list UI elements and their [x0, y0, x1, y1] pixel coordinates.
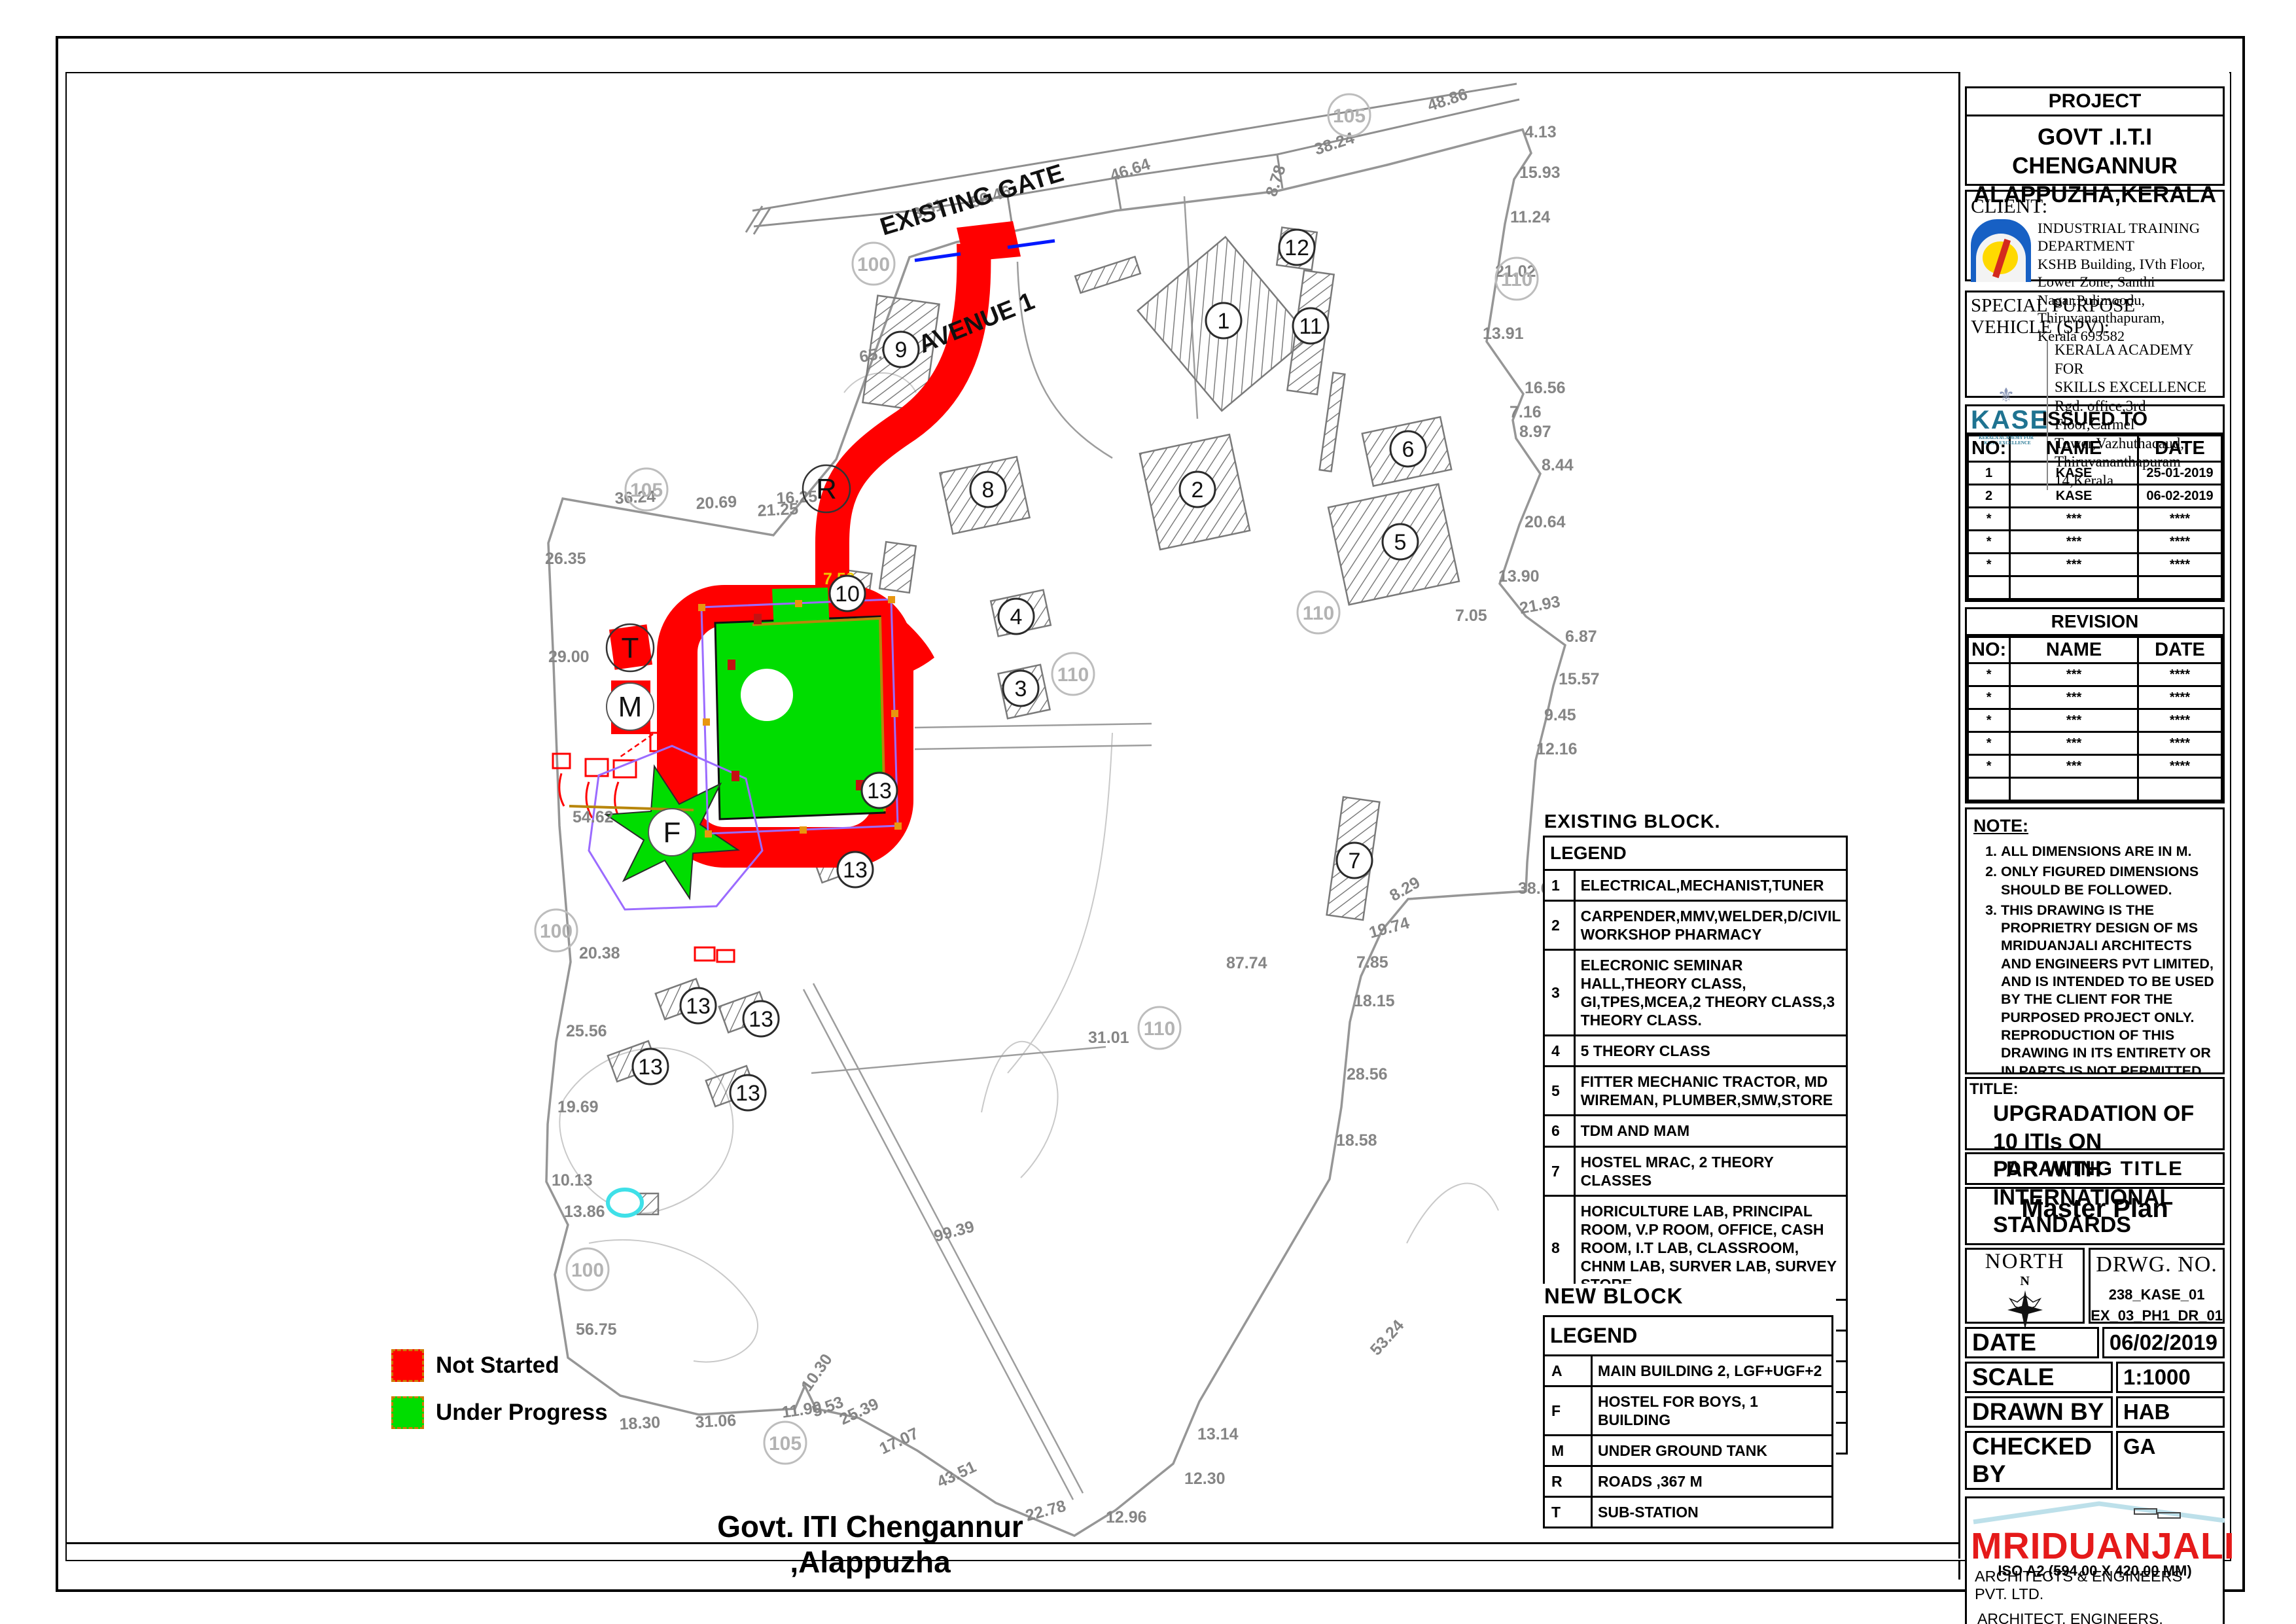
meta-date: DATE 06/02/2019	[1965, 1327, 2225, 1358]
title-block: PROJECT GOVT .I.T.I CHENGANNUR ALAPPUZHA…	[1958, 72, 2229, 1559]
revision-row: ********	[1968, 686, 2222, 709]
text-line: KERALA ACADEMY FOR	[2055, 341, 2220, 378]
revision-section: REVISION NO: NAME DATE *****************…	[1965, 607, 2225, 803]
revision-row: ********	[1968, 732, 2222, 755]
existing-block-title: EXISTING BLOCK.	[1544, 811, 1836, 833]
text-line: INDUSTRIAL TRAINING	[2038, 219, 2220, 237]
new-block-legend-row: FHOSTEL FOR BOYS, 1 BUILDING	[1544, 1386, 1833, 1436]
company-roof-icon	[1971, 1501, 2227, 1525]
existing-legend-row: 3ELECRONIC SEMINAR HALL,THEORY CLASS, GI…	[1544, 950, 1847, 1036]
revision-row: ********	[1968, 663, 2222, 686]
note-label: NOTE:	[1973, 816, 2217, 836]
project-header: PROJECT	[1967, 88, 2223, 116]
title-label: TITLE:	[1967, 1079, 2223, 1100]
new-block-title: NEW BLOCK	[1544, 1284, 1836, 1309]
existing-legend-row: 2CARPENDER,MMV,WELDER,D/CIVIL WORKSHOP P…	[1544, 901, 1847, 950]
text-line: DEPARTMENT	[2038, 237, 2220, 255]
under-progress-swatch	[391, 1396, 424, 1429]
new-block-table: LEGEND AMAIN BUILDING 2, LGF+UGF+2FHOSTE…	[1543, 1315, 1833, 1528]
new-block-legend-row: RROADS ,367 M	[1544, 1466, 1833, 1497]
legend-header: LEGEND	[1544, 1316, 1833, 1356]
new-block-legend-row: TSUB-STATION	[1544, 1497, 1833, 1528]
new-block-legend: NEW BLOCK LEGEND AMAIN BUILDING 2, LGF+U…	[1543, 1284, 1836, 1528]
iso-size-note: ISO A2 (594.00 X 420.00 MM)	[1958, 1560, 2229, 1580]
new-block-legend-row: AMAIN BUILDING 2, LGF+UGF+2	[1544, 1356, 1833, 1386]
drawing-sheet: 3.3156.4646.6438.2448.868.784.1315.9311.…	[0, 0, 2296, 1624]
title-section: TITLE: UPGRADATION OF 10 ITIs ON PAR WIT…	[1965, 1077, 2225, 1150]
text-line: SKILLS EXCELLENCE	[2055, 378, 2220, 397]
status-not-started: Not Started	[391, 1349, 608, 1382]
text-line: KSHB Building, IVth Floor,	[2038, 255, 2220, 273]
issued-to-row: ********	[1968, 508, 2222, 531]
revision-row: ********	[1968, 709, 2222, 732]
note-section: NOTE: ALL DIMENSIONS ARE IN M.ONLY FIGUR…	[1965, 807, 2225, 1074]
revision-table: NO: NAME DATE **************************…	[1967, 636, 2223, 802]
status-label: Under Progress	[436, 1400, 608, 1426]
existing-legend-row: 1ELECTRICAL,MECHANIST,TUNER	[1544, 870, 1847, 901]
north-box: NORTH N	[1965, 1248, 2085, 1324]
note-item: ONLY FIGURED DIMENSIONS SHOULD BE FOLLOW…	[2001, 863, 2217, 899]
industrial-training-dept-logo-icon	[1971, 219, 2031, 282]
existing-legend-row: 7HOSTEL MRAC, 2 THEORY CLASSES	[1544, 1146, 1847, 1195]
status-label: Not Started	[436, 1352, 559, 1379]
drwg-no-box: DRWG. NO. 238_KASE_01 EX_03_PH1_DR_01	[2089, 1248, 2225, 1324]
issued-to-table: NO: NAME DATE 1KASE25-01-20192KASE06-02-…	[1967, 434, 2223, 600]
note-item: ALL DIMENSIONS ARE IN M.	[2001, 843, 2217, 860]
compass-icon	[2002, 1289, 2048, 1331]
new-block-legend-row: MUNDER GROUND TANK	[1544, 1436, 1833, 1466]
issued-to-row: ********	[1968, 531, 2222, 554]
existing-legend-row: 5FITTER MECHANIC TRACTOR, MD WIREMAN, PL…	[1544, 1067, 1847, 1116]
meta-checked-by: CHECKED BY GA	[1965, 1431, 2225, 1490]
status-legend: Not Started Under Progress	[391, 1349, 608, 1443]
issued-to-row: ********	[1968, 554, 2222, 576]
legend-header: LEGEND	[1544, 837, 1847, 870]
status-under-progress: Under Progress	[391, 1396, 608, 1429]
meta-drawn-by: DRAWN BY HAB	[1965, 1396, 2225, 1428]
revision-title: REVISION	[1967, 609, 2223, 636]
issued-to-row	[1968, 576, 2222, 599]
map-title: Govt. ITI Chengannur ,Alappuzha	[641, 1509, 1099, 1580]
revision-row: ********	[1968, 755, 2222, 778]
existing-legend-row: 45 THEORY CLASS	[1544, 1036, 1847, 1067]
note-item: THIS DRAWING IS THE PROPRIETRY DESIGN OF…	[2001, 902, 2217, 1074]
meta-scale: SCALE 1:1000	[1965, 1362, 2225, 1393]
company-tagline: ARCHITECT, ENGINEERS, INTERIOR, LANDSCAP…	[1977, 1610, 2219, 1624]
kase-logo-icon: ⚜ KASE KERALA ACADEMY FOR SKILLS EXCELLE…	[1971, 386, 2041, 446]
sheet-inner-frame	[65, 72, 2231, 1561]
not-started-swatch	[391, 1349, 424, 1382]
revision-row	[1968, 778, 2222, 801]
project-section: PROJECT GOVT .I.T.I CHENGANNUR ALAPPUZHA…	[1965, 86, 2225, 186]
existing-legend-row: 6TDM AND MAM	[1544, 1116, 1847, 1146]
